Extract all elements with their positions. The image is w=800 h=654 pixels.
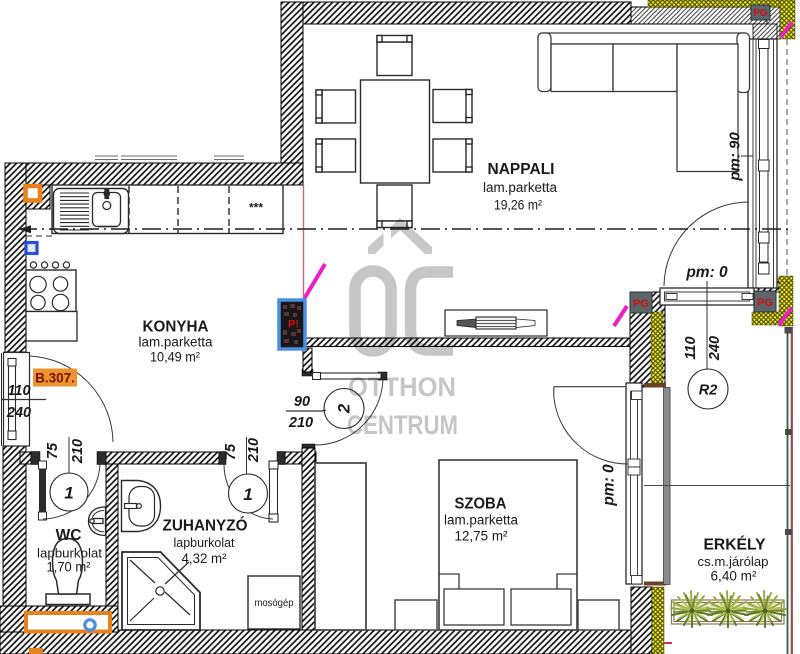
svg-text:CENTRUM: CENTRUM xyxy=(347,410,458,440)
svg-text:SZOBA: SZOBA xyxy=(455,496,507,513)
svg-text:12,75 m²: 12,75 m² xyxy=(455,529,508,544)
svg-text:PG: PG xyxy=(757,297,773,309)
svg-text:1: 1 xyxy=(243,485,252,504)
svg-text:***: *** xyxy=(249,201,263,215)
svg-text:1: 1 xyxy=(64,484,73,503)
svg-text:4,32 m²: 4,32 m² xyxy=(182,551,227,566)
svg-text:PG: PG xyxy=(633,298,649,310)
svg-text:90: 90 xyxy=(294,394,310,410)
svg-text:210: 210 xyxy=(70,439,86,464)
svg-text:lapburkolat: lapburkolat xyxy=(174,535,235,550)
svg-text:pm: 0: pm: 0 xyxy=(685,264,728,281)
svg-text:110: 110 xyxy=(683,336,699,359)
svg-text:lam.parketta: lam.parketta xyxy=(139,335,213,350)
svg-text:P!: P! xyxy=(288,319,299,331)
svg-text:lapburkolat: lapburkolat xyxy=(37,546,102,561)
svg-text:6,40 m²: 6,40 m² xyxy=(711,569,757,584)
svg-text:cs.m.járólap: cs.m.járólap xyxy=(698,554,769,569)
svg-text:110: 110 xyxy=(7,383,30,399)
svg-text:75: 75 xyxy=(45,442,61,459)
svg-text:10,49 m²: 10,49 m² xyxy=(150,350,200,365)
svg-text:210: 210 xyxy=(246,438,262,463)
svg-text:210: 210 xyxy=(288,415,313,431)
svg-text:pm: 90: pm: 90 xyxy=(727,132,744,182)
svg-text:lam.parketta: lam.parketta xyxy=(483,180,557,195)
svg-text:R2: R2 xyxy=(699,383,718,399)
svg-text:pm: 0: pm: 0 xyxy=(601,464,618,507)
svg-text:WC: WC xyxy=(56,527,82,544)
svg-text:mosógép: mosógép xyxy=(255,598,294,609)
svg-text:1,70 m²: 1,70 m² xyxy=(47,560,91,575)
svg-text:OTTHON: OTTHON xyxy=(348,372,456,402)
svg-text:ERKÉLY: ERKÉLY xyxy=(704,537,767,554)
svg-text:B.307.: B.307. xyxy=(35,371,75,386)
svg-text:ZUHANYZÓ: ZUHANYZÓ xyxy=(163,517,248,535)
svg-text:240: 240 xyxy=(6,405,31,421)
svg-text:lam.parketta: lam.parketta xyxy=(444,513,518,528)
svg-text:19,26 m²: 19,26 m² xyxy=(494,198,542,213)
svg-text:75: 75 xyxy=(223,443,239,460)
svg-text:NAPPALI: NAPPALI xyxy=(488,161,555,178)
svg-text:KONYHA: KONYHA xyxy=(143,319,209,336)
svg-text:240: 240 xyxy=(707,336,723,361)
svg-text:PG: PG xyxy=(753,8,768,19)
